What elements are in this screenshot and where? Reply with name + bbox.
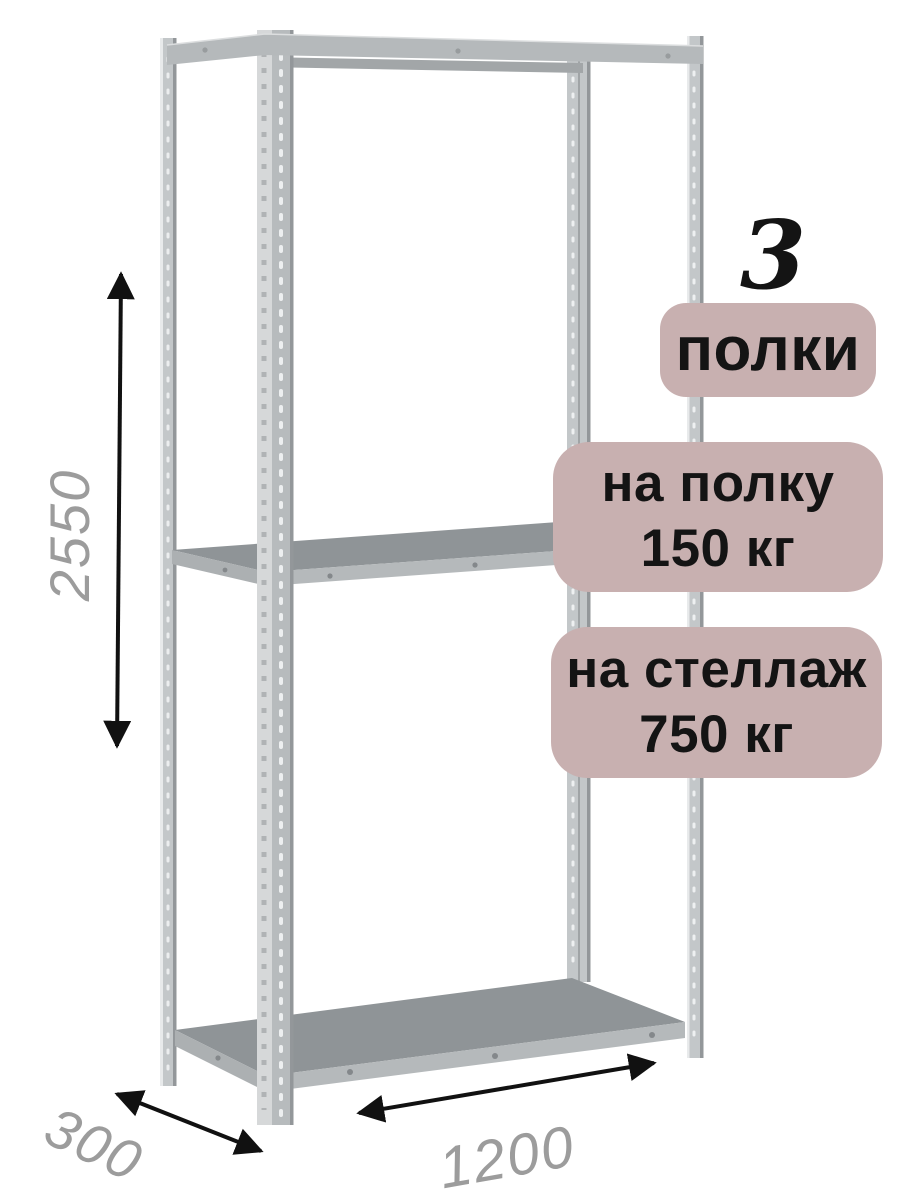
- beam-screw: [455, 48, 460, 53]
- height-dimension-arrow: [117, 274, 121, 746]
- rack-illustration: [0, 0, 900, 1200]
- rack-bottom-shelf: [175, 978, 685, 1092]
- shelf-bolt: [472, 562, 477, 567]
- per-rack-capacity-badge: на стеллаж 750 кг: [551, 627, 882, 778]
- shelf-bolt: [327, 573, 332, 578]
- per-shelf-capacity-value: 150 кг: [641, 517, 796, 582]
- shelf-count-value: 3: [722, 208, 824, 303]
- product-image: 3 полки на полку 150 кг на стеллаж 750 к…: [0, 0, 900, 1200]
- rack-post-front-left: [257, 30, 294, 1125]
- shelf-bolt: [492, 1053, 498, 1059]
- beam-screw: [202, 47, 207, 52]
- shelf-count-unit-label: полки: [676, 312, 861, 388]
- per-rack-capacity-label: на стеллаж: [566, 638, 867, 703]
- per-shelf-capacity-label: на полку: [602, 452, 835, 517]
- beam-screw: [665, 53, 670, 58]
- shelf-bolt: [223, 568, 228, 573]
- shelf-count-badge: полки: [660, 303, 876, 397]
- shelf-bolt: [649, 1032, 655, 1038]
- height-dimension-label: 2550: [37, 446, 95, 624]
- shelf-bolt: [347, 1069, 353, 1075]
- per-shelf-capacity-badge: на полку 150 кг: [553, 442, 883, 592]
- shelf-bolt: [215, 1055, 220, 1060]
- per-rack-capacity-value: 750 кг: [639, 703, 794, 768]
